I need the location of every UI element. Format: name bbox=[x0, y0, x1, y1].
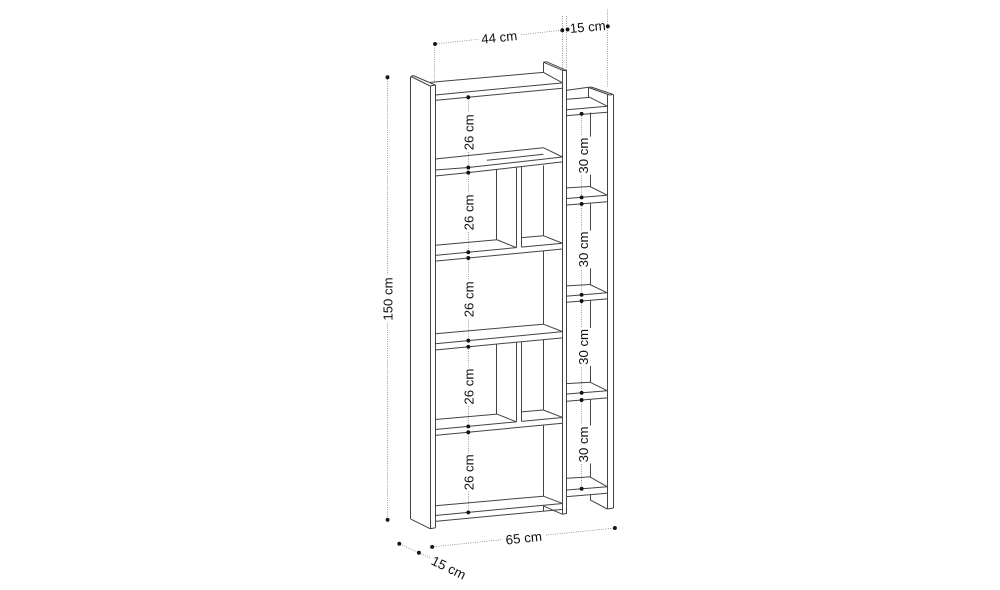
svg-text:30 cm: 30 cm bbox=[576, 231, 591, 267]
svg-text:26 cm: 26 cm bbox=[461, 454, 476, 490]
svg-text:30 cm: 30 cm bbox=[576, 329, 591, 365]
svg-text:26 cm: 26 cm bbox=[461, 369, 476, 405]
svg-text:30 cm: 30 cm bbox=[576, 426, 591, 462]
svg-text:150 cm: 150 cm bbox=[380, 277, 395, 320]
svg-text:26 cm: 26 cm bbox=[461, 194, 476, 230]
svg-text:26 cm: 26 cm bbox=[461, 114, 476, 150]
svg-text:15 cm: 15 cm bbox=[569, 18, 606, 36]
svg-text:30 cm: 30 cm bbox=[576, 138, 591, 174]
svg-text:26 cm: 26 cm bbox=[461, 281, 476, 317]
